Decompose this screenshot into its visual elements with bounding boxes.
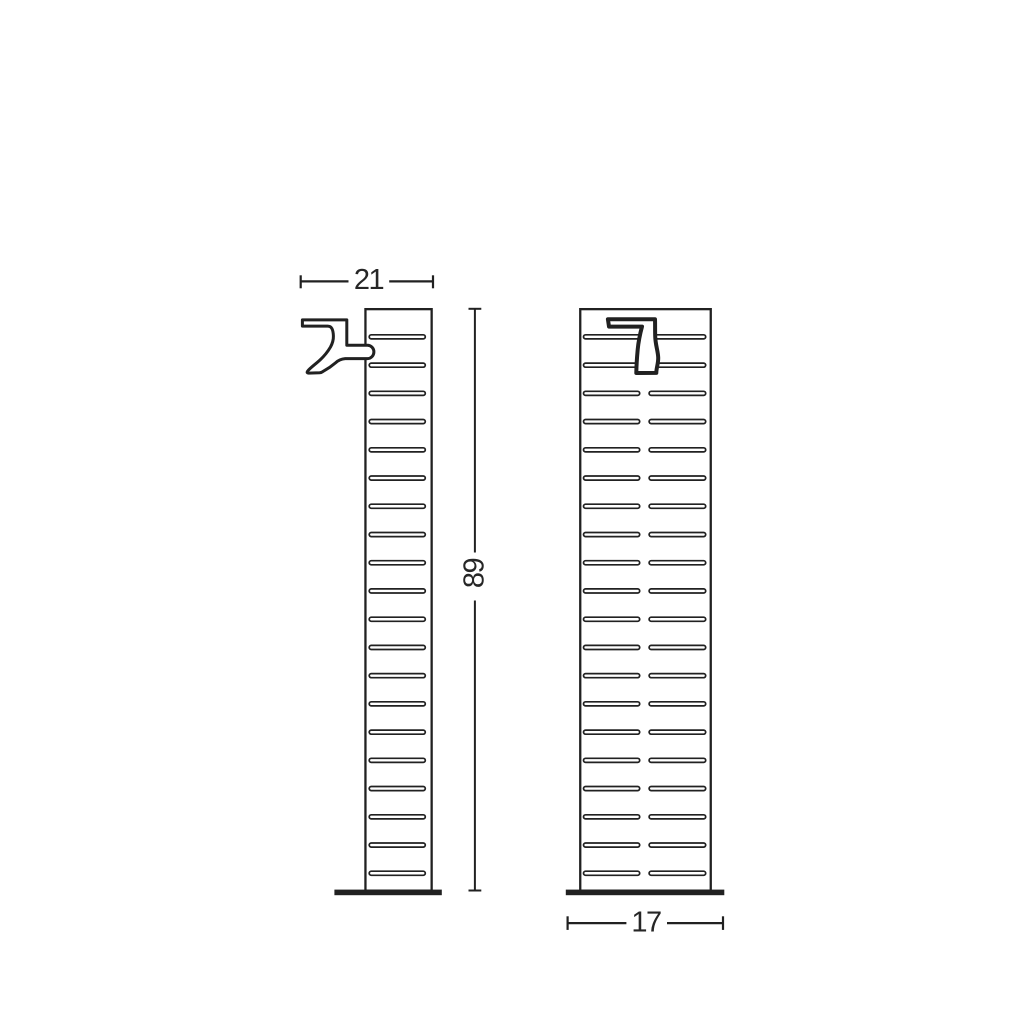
svg-text:21: 21 — [354, 264, 384, 296]
svg-text:17: 17 — [631, 907, 661, 939]
svg-text:89: 89 — [459, 559, 491, 589]
